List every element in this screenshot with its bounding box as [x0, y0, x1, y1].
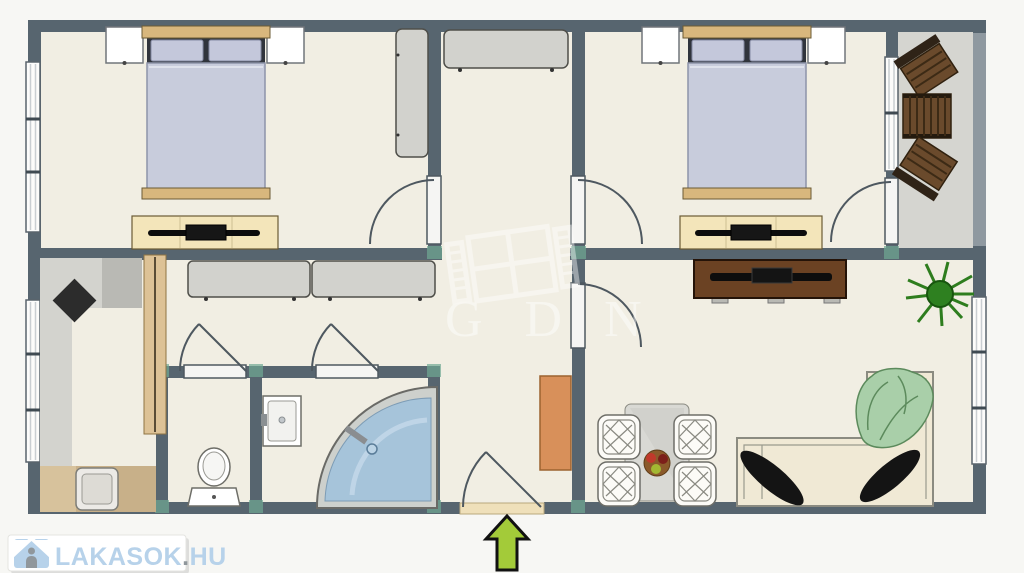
kitchen-appliance [102, 258, 142, 308]
washbasin-icon [261, 396, 301, 446]
double-bed-icon [142, 26, 270, 199]
wicker-chair-icon [674, 415, 716, 459]
dresser-tv-icon [132, 216, 278, 249]
floor-plan-image: GDN LAKASOK.HU [0, 0, 1024, 573]
wicker-chair-icon [598, 462, 640, 506]
entry-arrow-icon [486, 516, 528, 570]
nightstand [808, 27, 845, 63]
house-icon [13, 536, 50, 568]
hall-wardrobe [188, 261, 310, 297]
site-logo: LAKASOK.HU [8, 535, 227, 573]
kitchen-sink-icon [76, 468, 118, 510]
window-balcony-icon [885, 57, 898, 171]
nightstand [106, 27, 143, 63]
nightstand [267, 27, 304, 63]
svg-text:LAKASOK.HU: LAKASOK.HU [55, 543, 227, 571]
wardrobe-bedroom1 [396, 29, 428, 157]
inner-hall-wardrobe [444, 30, 568, 72]
wicker-chair-icon [674, 462, 716, 506]
floor-plan-svg: GDN LAKASOK.HU [0, 0, 1024, 573]
window-kitchen-icon [26, 300, 40, 462]
double-bed-icon [683, 26, 811, 199]
window-livingroom-icon [972, 297, 986, 464]
logo-separator: . [182, 543, 189, 571]
window-bedroom1-icon [26, 62, 40, 232]
tv-console-icon [694, 260, 846, 303]
fruit-bowl-icon [644, 450, 670, 476]
hall-cabinet-orange [540, 376, 571, 470]
sliding-door-icon [144, 255, 166, 434]
hall-wardrobe [312, 261, 435, 297]
nightstand [642, 27, 679, 63]
logo-brand: LAKASOK [55, 543, 182, 571]
wicker-chair-icon [598, 415, 640, 459]
balcony-table-icon [903, 94, 951, 138]
watermark-text: GDN [445, 291, 684, 348]
dresser-tv-icon [680, 216, 822, 249]
logo-tld: HU [190, 543, 227, 571]
